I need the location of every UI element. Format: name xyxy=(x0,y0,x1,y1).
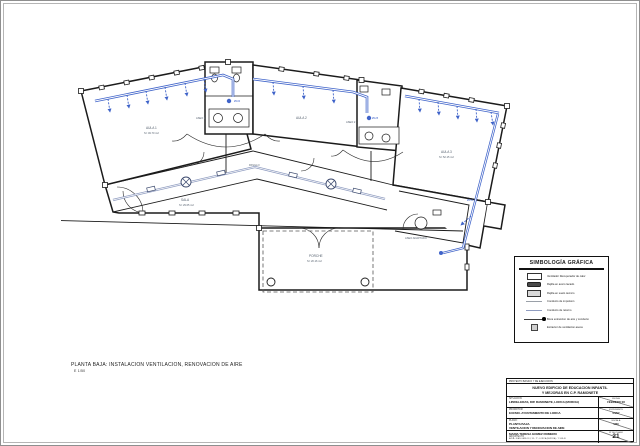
legend-item-extractor: Extractor de ventilacion aseos xyxy=(515,323,608,332)
caption-title: PLANTA BAJA: INSTALACION VENTILACION, RE… xyxy=(71,362,243,368)
grille-dark-icon xyxy=(521,282,547,287)
extract-line-icon xyxy=(521,319,547,320)
caption-scale: E 1/50 xyxy=(74,369,243,373)
drawing-sheet: AULA 1 S= 49.70 m2 ASEO 1 AULA 2 ASEO 2 … xyxy=(0,0,640,446)
recuperator-box-icon xyxy=(521,273,547,280)
return-line-icon xyxy=(521,310,547,311)
supply-line-icon xyxy=(521,301,547,302)
legend-title-rule xyxy=(519,268,604,270)
legend-item-grille-light: Rejilla en suelo tecnico xyxy=(515,289,608,298)
svg-text:PASILLO: PASILLO xyxy=(249,163,260,167)
promotor-value: EXCMO. AYUNTAMIENTO DE LORCA xyxy=(509,411,596,415)
extractor-box-icon xyxy=(521,324,547,331)
svg-text:S= 49.70 m2: S= 49.70 m2 xyxy=(144,131,159,135)
svg-text:S= 20.16 m2: S= 20.16 m2 xyxy=(307,259,322,263)
svg-text:AULA 3: AULA 3 xyxy=(441,150,452,154)
svg-text:ASEO 1: ASEO 1 xyxy=(196,116,206,120)
situacion-value: LIBRILLERAS, DIP. RAMONETE, LORCA (MURCI… xyxy=(509,400,596,404)
row-situacion: SITUACION: LIBRILLERAS, DIP. RAMONETE, L… xyxy=(507,397,633,408)
floor-plan: AULA 1 S= 49.70 m2 ASEO 1 AULA 2 ASEO 2 … xyxy=(61,5,513,355)
svg-text:Ø125: Ø125 xyxy=(372,117,379,120)
svg-text:Ø150: Ø150 xyxy=(467,199,474,202)
cell-fecha: FECHA FEBRERO 08 xyxy=(599,397,633,407)
legend-title: SIMBOLOGÍA GRÁFICA xyxy=(515,257,608,266)
plan-caption: PLANTA BAJA: INSTALACION VENTILACION, RE… xyxy=(71,362,243,373)
svg-text:Ø100: Ø100 xyxy=(234,100,241,103)
row-promotor: PROMOTOR: EXCMO. AYUNTAMIENTO DE LORCA E… xyxy=(507,408,633,419)
row-arquitecto: MARIA TERESA GOMEZ ROMERO ARQUITECTO AVD… xyxy=(507,431,633,443)
legend-item-recuperator: Ventilador Recuperador de calor xyxy=(515,272,608,281)
svg-text:ASEO 2: ASEO 2 xyxy=(346,120,356,124)
svg-text:S= 52.15 m2: S= 52.15 m2 xyxy=(439,155,454,159)
svg-text:AULA 1: AULA 1 xyxy=(146,126,157,130)
legend-item-grille-dark: Rejilla en acero lacado xyxy=(515,280,608,289)
plano-number: 21 xyxy=(601,434,632,441)
plano-value-2: VENTILACION Y RENOVACION DE AIRE xyxy=(509,426,596,430)
legend-item-supply-line: Conducto de impulsion xyxy=(515,298,608,307)
project-title: NUEVO EDIFICIO DE EDUCACION INFANTIL Y M… xyxy=(507,384,633,397)
cell-expediente: EXPEDIENTE 04/07 xyxy=(599,408,633,418)
legend-item-return-line: Conducto de retorno xyxy=(515,306,608,315)
legend-box: SIMBOLOGÍA GRÁFICA Ventilador Recuperado… xyxy=(514,256,609,343)
title-block: PROYECTO BASICO Y DE EJECUCION NUEVO EDI… xyxy=(506,378,634,442)
svg-text:SALA: SALA xyxy=(181,198,190,202)
svg-text:AULA 2: AULA 2 xyxy=(296,116,307,120)
cell-escala: ESCALA 1/50 xyxy=(599,419,633,430)
legend-item-extract-line: Boca extraccion de aire y conducto xyxy=(515,315,608,324)
arquitecto-address: AVDA. JUAN CARLOS I, 33 - 1º - LORCA (MU… xyxy=(509,438,596,440)
row-plano: PLANO: PLANTA BAJA. VENTILACION Y RENOVA… xyxy=(507,419,633,431)
svg-text:ASEO ADAPTADO: ASEO ADAPTADO xyxy=(405,236,427,240)
svg-text:PORCHE: PORCHE xyxy=(309,254,323,258)
svg-text:S= 29.05 m2: S= 29.05 m2 xyxy=(179,203,194,207)
grille-light-icon xyxy=(521,290,547,297)
cell-num-plano: Nº DE PLANO 21 xyxy=(599,431,633,443)
